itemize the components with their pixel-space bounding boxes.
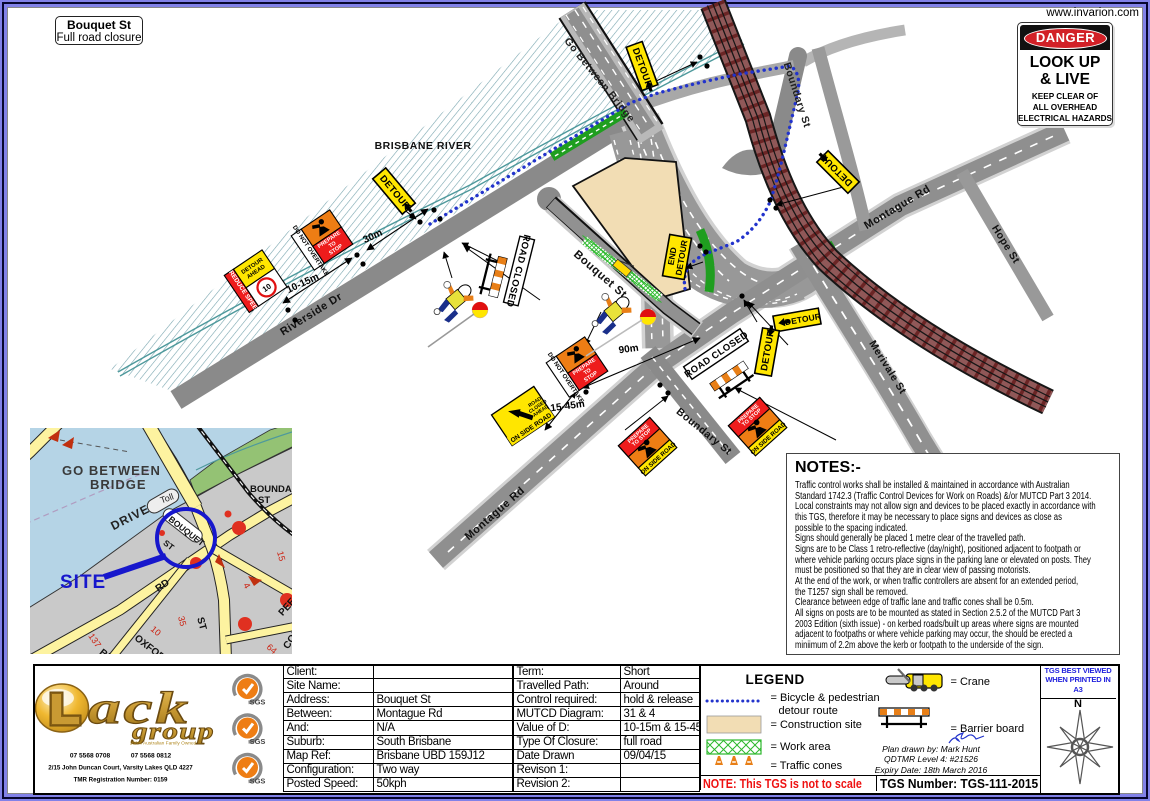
svg-text:ST: ST bbox=[258, 495, 270, 506]
svg-text:BRISBANE RIVER: BRISBANE RIVER bbox=[375, 140, 472, 152]
svg-text:SGS: SGS bbox=[250, 737, 266, 746]
svg-text:2/15 John Duncan Court, Varsit: 2/15 John Duncan Court, Varsity Lakes QL… bbox=[48, 765, 193, 772]
svg-text:07 5568 0812: 07 5568 0812 bbox=[131, 753, 172, 760]
svg-text:BOUNDA: BOUNDA bbox=[250, 484, 292, 495]
svg-text:GO BETWEEN: GO BETWEEN bbox=[62, 463, 161, 478]
svg-text:Hope St: Hope St bbox=[989, 223, 1022, 266]
svg-text:SGS: SGS bbox=[250, 777, 266, 786]
svg-text:SGS: SGS bbox=[250, 698, 266, 707]
svg-text:100% Australian Family Owned: 100% Australian Family Owned bbox=[130, 741, 197, 747]
svg-text:BRIDGE: BRIDGE bbox=[90, 477, 147, 492]
svg-text:TMR Registration Number: 0159: TMR Registration Number: 0159 bbox=[74, 777, 168, 784]
svg-text:SITE: SITE bbox=[60, 572, 106, 593]
svg-text:90m: 90m bbox=[618, 343, 639, 357]
svg-text:07 5568 0708: 07 5568 0708 bbox=[70, 753, 111, 760]
